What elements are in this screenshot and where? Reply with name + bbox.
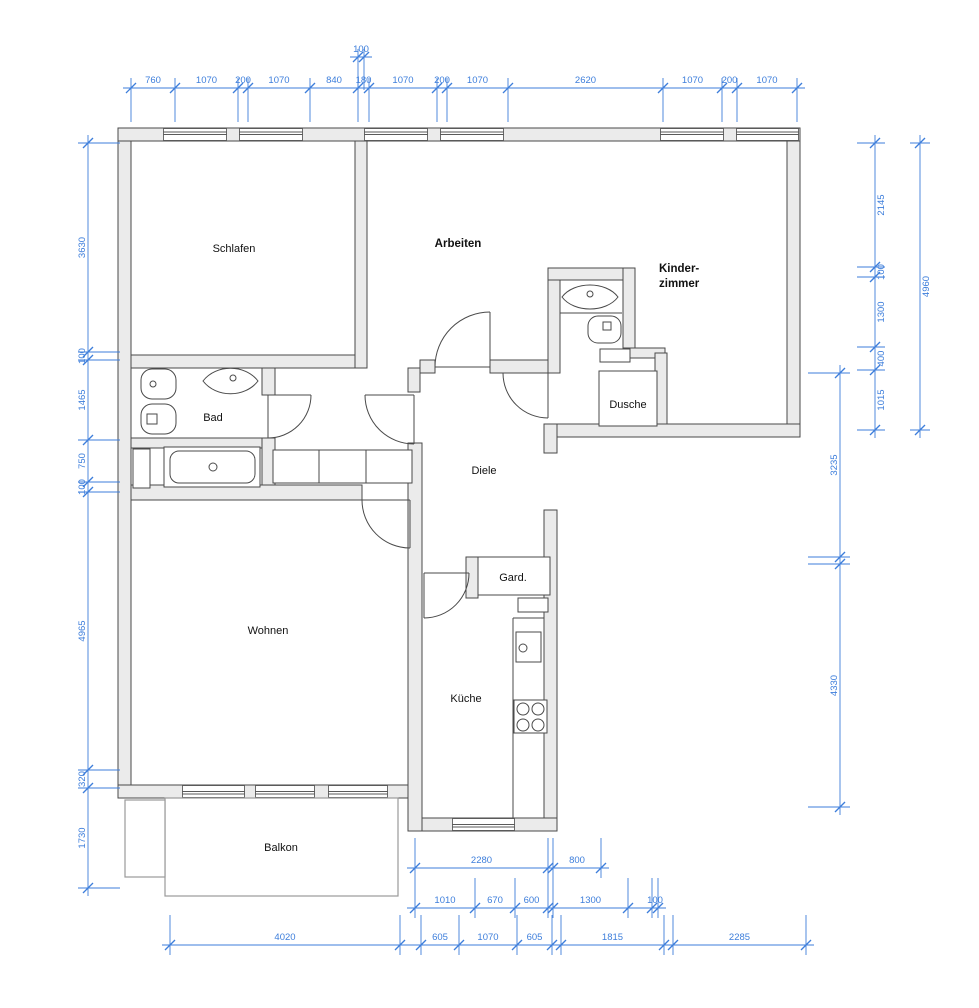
room-label-kinderzimmer-2: zimmer [659, 278, 700, 290]
kueche-fixtures [513, 618, 547, 818]
dimension-label: 670 [487, 895, 503, 906]
dimension-label: 400 [876, 351, 887, 367]
room-label-schlafen: Schlafen [213, 243, 256, 255]
wall-wc-left [548, 268, 560, 373]
door-schlafen [365, 395, 414, 444]
dimension-chain-right_inner: 214510013004001015 [857, 135, 887, 438]
sink-tap [230, 375, 236, 381]
dimension-label: 1730 [77, 827, 88, 848]
room-label-dusche: Dusche [609, 399, 646, 411]
wall-arbeiten-south-b [490, 360, 548, 373]
dimension-label: 750 [77, 453, 88, 469]
gard-fixtures [478, 557, 550, 612]
toilet-tank [147, 414, 157, 424]
dimension-label: 4960 [921, 276, 932, 297]
dimension-label: 1815 [602, 932, 623, 943]
toilet-icon [141, 404, 176, 434]
room-label-kinderzimmer-1: Kinder- [659, 263, 699, 275]
dimension-label: 760 [145, 75, 161, 86]
duct-box [518, 598, 548, 612]
dimension-chain-right_outer: 4960 [910, 135, 932, 438]
dimension-label: 1070 [268, 75, 289, 86]
dimension-label: 600 [524, 895, 540, 906]
sink-icon [203, 368, 258, 394]
window-icon [163, 128, 227, 141]
bathtub-drain [209, 463, 217, 471]
wardrobe-outline [273, 450, 412, 483]
room-label-kueche: Küche [450, 693, 481, 705]
dimension-label: 840 [326, 75, 342, 86]
wall-wc-right-upper [623, 268, 635, 353]
door-bad [268, 395, 311, 438]
wall-wc-top [548, 268, 635, 280]
sink-tap [587, 291, 593, 297]
dimension-label: 605 [527, 932, 543, 943]
dimension-label: 1300 [580, 895, 601, 906]
dimension-label: 100 [77, 479, 88, 495]
dimension-chain-left: 3630100146575010049653201730 [77, 135, 120, 896]
dimension-label: 2620 [575, 75, 596, 86]
dimension-label: 200 [235, 75, 251, 86]
room-label-diele: Diele [471, 465, 496, 477]
wall-bottom-upper-right [550, 424, 800, 437]
fixtures-layer [125, 285, 657, 896]
wall-arbeiten-south-a [420, 360, 435, 373]
floor-plan: Schlafen Arbeiten Kinder- zimmer Bad Dus… [0, 0, 979, 1008]
window-icon [736, 128, 799, 141]
room-label-balkon: Balkon [264, 842, 298, 854]
dimension-label: 1010 [434, 895, 455, 906]
wardrobe [273, 450, 412, 483]
dimension-label: 2280 [471, 855, 492, 866]
dimension-chain-right_lower: 32354330 [808, 365, 850, 815]
window-icon [239, 128, 303, 141]
room-label-arbeiten: Arbeiten [435, 238, 482, 250]
wall-gard-stub [466, 557, 478, 598]
burner [517, 719, 529, 731]
dimension-label: 1015 [876, 389, 887, 410]
dimension-label: 100 [77, 348, 88, 364]
dimension-label: 4020 [274, 932, 295, 943]
window-icon [364, 128, 428, 141]
window-icon [452, 818, 515, 831]
dimension-label: 320 [77, 771, 88, 787]
wall-schlafen-divider [355, 141, 367, 368]
dimension-chain-bottom_b: 10106706001300100 [407, 878, 666, 918]
door-kueche [424, 573, 469, 618]
dimension-label: 1070 [756, 75, 777, 86]
dimension-label: 100 [647, 895, 663, 906]
wall-left [118, 141, 131, 798]
dimension-label: 1070 [467, 75, 488, 86]
dimension-label: 1465 [77, 389, 88, 410]
bad-fixtures [133, 368, 260, 488]
wall-corridor-stub [408, 368, 420, 392]
dimension-label: 2285 [729, 932, 750, 943]
door-wohnen [362, 500, 410, 548]
dimension-label: 200 [722, 75, 738, 86]
dimension-chain-bottom_c: 4020605107060518152285 [162, 915, 814, 955]
dimension-label: 200 [434, 75, 450, 86]
dimension-label: 3630 [77, 237, 88, 258]
dimension-label: 800 [569, 855, 585, 866]
window-icon [440, 128, 504, 141]
kitchen-sink-drain [519, 644, 527, 652]
floor-plan-canvas: Schlafen Arbeiten Kinder- zimmer Bad Dus… [0, 0, 979, 1008]
dimension-label: 1070 [682, 75, 703, 86]
dimension-label: 2145 [876, 194, 887, 215]
door-arbeiten [435, 312, 490, 367]
window-icon [660, 128, 724, 141]
dimension-label: 1070 [477, 932, 498, 943]
room-label-bad: Bad [203, 412, 223, 424]
dimension-label: 4330 [829, 675, 840, 696]
dimension-label: 1300 [876, 301, 887, 322]
dimension-label: 4965 [77, 620, 88, 641]
dimension-chain-bottom_a: 2280800 [407, 838, 609, 878]
room-label-gard: Gard. [499, 572, 527, 584]
dimension-label: 100 [353, 44, 369, 55]
room-label-wohnen: Wohnen [248, 625, 289, 637]
dimension-chain-top: 7601070200107084018010702001070262010702… [123, 75, 805, 122]
wall-bad-right [262, 368, 275, 395]
balcony-side-outline [125, 800, 165, 877]
burner [532, 703, 544, 715]
dimension-label: 1070 [392, 75, 413, 86]
bidet-icon [141, 369, 176, 399]
window-icon [182, 785, 245, 798]
wall-entry-upper [544, 424, 557, 453]
bidet-drain [150, 381, 156, 387]
burner [517, 703, 529, 715]
dimension-label: 100 [876, 264, 887, 280]
shelf [600, 349, 630, 362]
dimension-label: 605 [432, 932, 448, 943]
toilet-tank [603, 322, 611, 330]
burner [532, 719, 544, 731]
window-icon [328, 785, 388, 798]
window-icon [255, 785, 315, 798]
dimension-label: 1070 [196, 75, 217, 86]
door-wc [503, 373, 548, 418]
shelf [133, 449, 150, 488]
dimension-label: 3235 [829, 454, 840, 475]
wall-right-upper [787, 141, 800, 437]
wall-bad-top [131, 355, 355, 368]
